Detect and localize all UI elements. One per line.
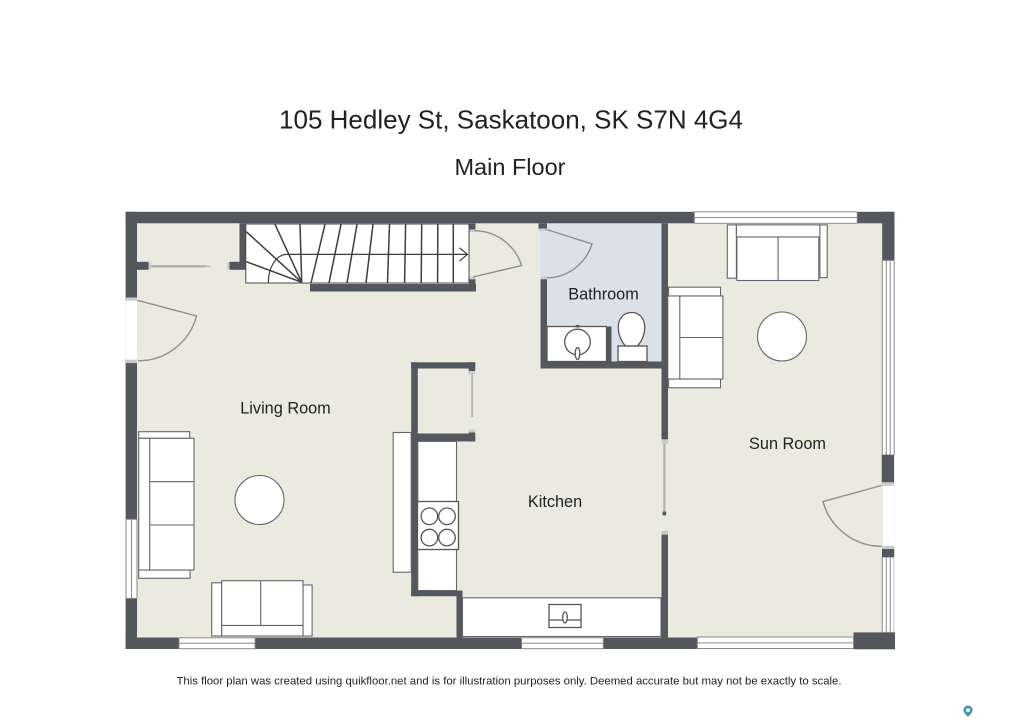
svg-text:Living Room: Living Room: [240, 400, 331, 418]
svg-text:Kitchen: Kitchen: [528, 493, 582, 511]
svg-text:Sun Room: Sun Room: [749, 435, 826, 453]
svg-text:105 Hedley St, Saskatoon, SK S: 105 Hedley St, Saskatoon, SK S7N 4G4: [279, 105, 743, 135]
svg-text:This floor plan was created us: This floor plan was created using quikfl…: [176, 676, 841, 688]
svg-text:Main Floor: Main Floor: [454, 154, 565, 180]
svg-text:Bathroom: Bathroom: [568, 286, 639, 304]
